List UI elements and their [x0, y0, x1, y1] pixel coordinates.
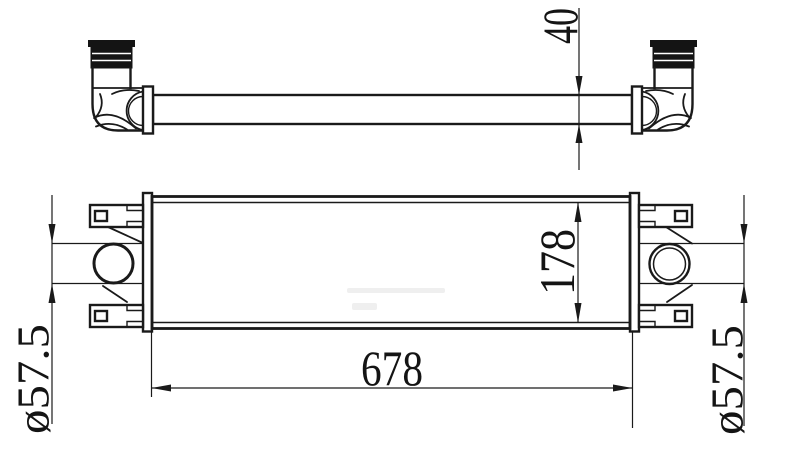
front-view: 178 678 ø57.5 ø57.5	[8, 193, 753, 435]
right-hose-connector	[632, 41, 697, 134]
bracket-support-line	[667, 285, 692, 302]
dimension-left-port-diameter: ø57.5	[8, 195, 59, 434]
dim-arrowhead-up-icon	[575, 202, 582, 222]
dim-label-40: 40	[532, 8, 588, 44]
dim-arrowhead-up-icon	[49, 284, 56, 304]
dimension-core-thickness: 40	[532, 8, 588, 170]
dim-label-678: 678	[361, 340, 423, 396]
dim-arrowhead-down-icon	[576, 76, 583, 95]
dimension-core-height: 178	[529, 202, 585, 323]
dim-arrowhead-left-icon	[152, 385, 172, 392]
top-view: 40	[89, 8, 697, 170]
dim-arrowhead-down-icon	[49, 224, 56, 244]
drawing-page: 40 178	[0, 0, 797, 450]
mounting-bracket-top-right	[639, 205, 692, 227]
dim-arrowhead-up-icon	[576, 124, 583, 143]
mounting-bracket-bottom-right	[639, 305, 692, 327]
dim-label-178: 178	[529, 229, 585, 295]
mounting-bracket-bottom-left	[90, 305, 143, 327]
left-port	[94, 244, 133, 283]
bracket-support-line	[666, 227, 692, 244]
dim-arrowhead-up-icon	[741, 284, 748, 304]
right-port	[650, 244, 690, 284]
bracket-support-line	[103, 286, 127, 302]
dim-arrowhead-down-icon	[575, 303, 582, 323]
dim-label-dia-right: ø57.5	[702, 325, 753, 435]
core-bar-top-view	[153, 95, 632, 124]
dimension-core-length: 678	[152, 332, 633, 428]
mounting-bracket-top-left	[90, 205, 143, 227]
dim-label-dia-left: ø57.5	[8, 324, 59, 434]
left-hose-connector	[89, 41, 154, 134]
bracket-support-line	[108, 227, 143, 243]
watermark-smudge	[352, 303, 377, 310]
dim-arrowhead-down-icon	[741, 224, 748, 244]
intercooler-technical-drawing: 40 178	[0, 0, 797, 450]
watermark-smudge	[347, 288, 445, 293]
dim-arrowhead-right-icon	[613, 385, 633, 392]
dimension-right-port-diameter: ø57.5	[702, 195, 753, 435]
